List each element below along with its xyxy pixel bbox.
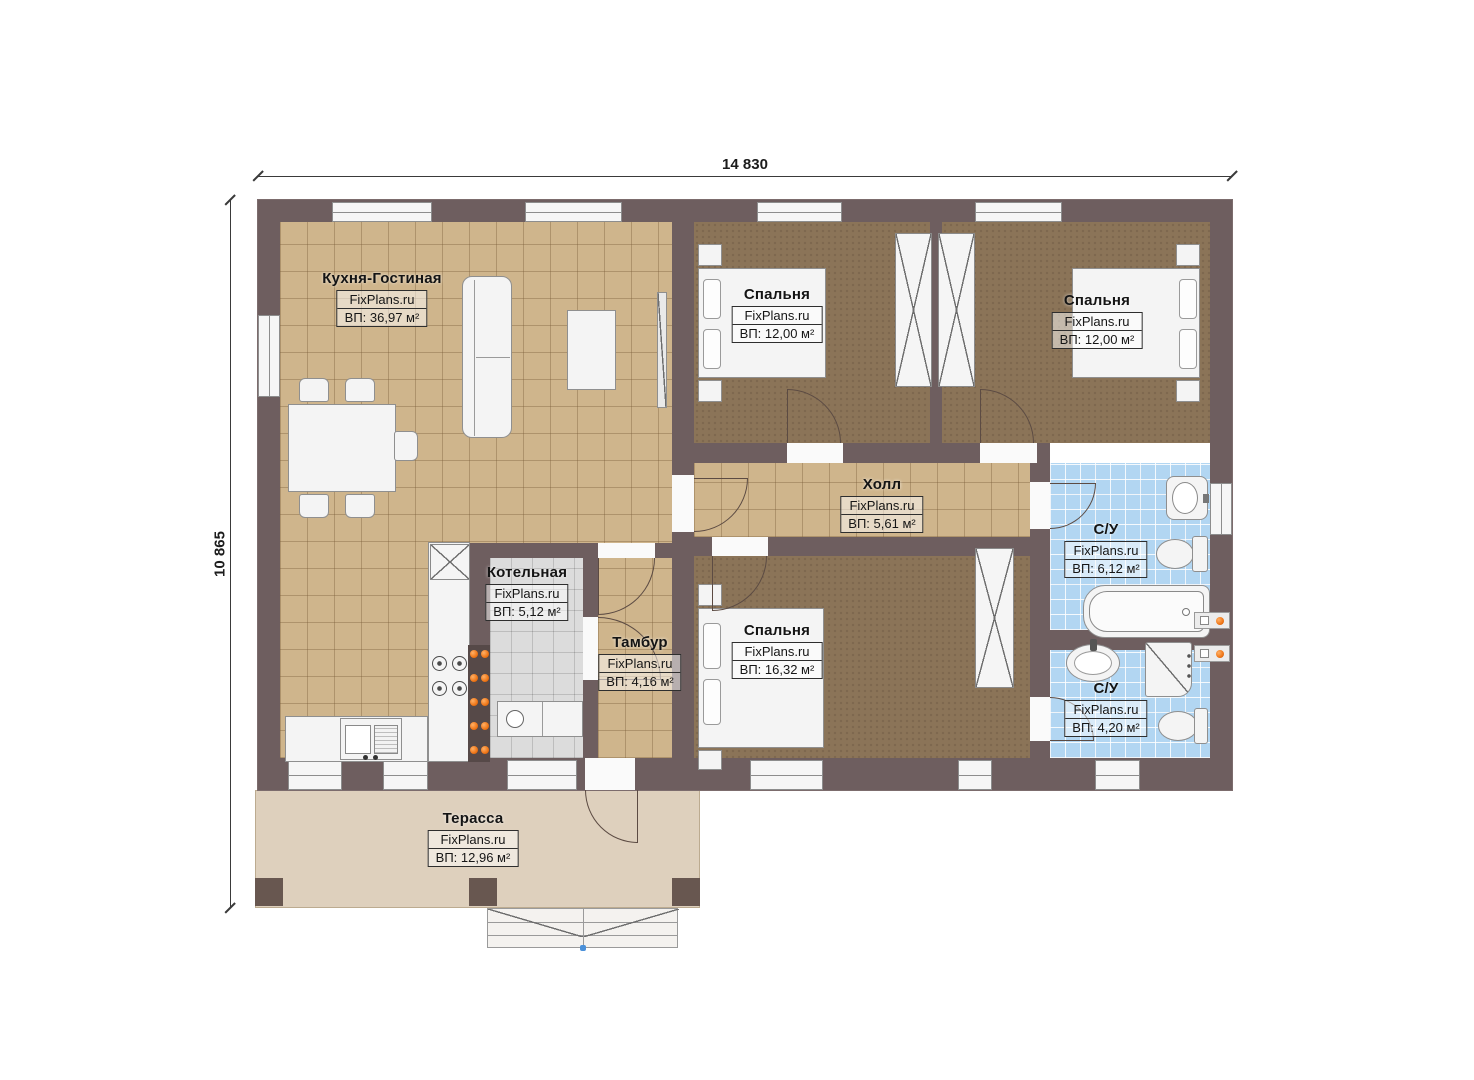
floor-plan-canvas: 14 830 10 865	[0, 0, 1474, 1080]
room-info-box: FixPlans.ru ВП: 5,61 м²	[840, 496, 923, 533]
radiator-icon	[1194, 645, 1230, 662]
bathtub-drain	[1182, 608, 1190, 616]
room-area: ВП: 16,32 м²	[733, 661, 822, 678]
room-label-hall: Холл FixPlans.ru ВП: 5,61 м²	[840, 476, 923, 533]
window-kitchen-bottom-1	[288, 760, 342, 790]
boiler-dial	[506, 710, 524, 728]
window-bathroom1-right	[1210, 483, 1232, 535]
bathroom-sink	[1066, 644, 1120, 682]
shower-cabin	[1145, 642, 1192, 697]
stove	[430, 654, 470, 700]
room-brand: FixPlans.ru	[338, 291, 427, 309]
radiator-icon	[470, 674, 489, 682]
door-opening-kitchen-tambur	[598, 543, 655, 558]
sink-tap	[1090, 639, 1097, 651]
stove-burner	[452, 681, 467, 696]
door-opening-bedroom2	[980, 443, 1037, 463]
room-label-tambur: Тамбур FixPlans.ru ВП: 4,16 м²	[598, 634, 681, 691]
pillow	[703, 679, 721, 725]
radiator-icon	[470, 722, 489, 730]
entrance-steps	[487, 908, 678, 948]
dining-chair	[345, 494, 375, 518]
nightstand	[1176, 244, 1200, 266]
window-kitchen-top-2	[525, 202, 622, 222]
stove-burner	[452, 656, 467, 671]
room-name: С/У	[1064, 680, 1147, 697]
window-kitchen-top-1	[332, 202, 432, 222]
room-area: ВП: 6,12 м²	[1065, 560, 1146, 577]
door-opening-kitchen-hall	[672, 475, 694, 532]
pillow	[703, 623, 721, 669]
wall-exterior-left	[258, 200, 280, 790]
room-info-box: FixPlans.ru ВП: 12,00 м²	[732, 306, 823, 343]
room-name: Терасса	[428, 810, 519, 827]
nightstand	[698, 750, 722, 770]
fridge	[430, 544, 470, 580]
dining-chair	[345, 378, 375, 402]
dimension-line-left	[230, 200, 231, 908]
step-marker-dot	[580, 945, 586, 951]
pillow	[703, 279, 721, 319]
sink-tap	[373, 755, 378, 760]
step-direction-line	[488, 909, 583, 937]
tv-unit	[657, 292, 667, 408]
room-name: Спальня	[1052, 292, 1143, 309]
nightstand	[698, 380, 722, 402]
room-brand: FixPlans.ru	[1053, 313, 1142, 331]
terrace-column	[469, 878, 497, 906]
boiler-unit	[497, 701, 583, 737]
pillow	[1179, 329, 1197, 369]
dining-chair	[299, 494, 329, 518]
shower-head-dots	[1186, 651, 1192, 683]
room-area: ВП: 4,20 м²	[1065, 719, 1146, 736]
toilet-tank	[1192, 536, 1208, 572]
window-bedroom2-top	[975, 202, 1062, 222]
sofa-backrest-line	[463, 280, 475, 436]
room-label-bedroom1: Спальня FixPlans.ru ВП: 12,00 м²	[732, 286, 823, 343]
room-brand: FixPlans.ru	[1065, 542, 1146, 560]
room-label-bathroom1: С/У FixPlans.ru ВП: 6,12 м²	[1064, 521, 1147, 578]
wardrobe	[975, 548, 1014, 688]
window-kitchen-left	[258, 315, 280, 397]
door-opening-entrance	[585, 758, 635, 790]
room-label-bathroom2: С/У FixPlans.ru ВП: 4,20 м²	[1064, 680, 1147, 737]
sink-drainer	[374, 725, 398, 754]
room-brand: FixPlans.ru	[486, 585, 567, 603]
room-label-boiler: Котельная FixPlans.ru ВП: 5,12 м²	[485, 564, 568, 621]
room-area: ВП: 5,12 м²	[486, 603, 567, 620]
door-opening-bathroom1	[1030, 482, 1050, 529]
kitchen-sink	[340, 718, 402, 760]
room-area: ВП: 4,16 м²	[599, 673, 680, 690]
sink-basin	[1172, 482, 1198, 514]
room-name: Кухня-Гостиная	[322, 270, 441, 287]
sink-basin	[1074, 651, 1112, 675]
room-brand: FixPlans.ru	[733, 643, 822, 661]
room-area: ВП: 12,00 м²	[1053, 331, 1142, 348]
nightstand	[698, 244, 722, 266]
door-opening-bedroom1	[787, 443, 843, 463]
room-info-box: FixPlans.ru ВП: 12,00 м²	[1052, 312, 1143, 349]
radiator-icon	[470, 650, 489, 658]
room-label-bedroom2: Спальня FixPlans.ru ВП: 12,00 м²	[1052, 292, 1143, 349]
dining-chair	[394, 431, 418, 461]
room-brand: FixPlans.ru	[429, 831, 518, 849]
wardrobe	[895, 233, 932, 387]
room-area: ВП: 12,00 м²	[733, 325, 822, 342]
radiator-icon	[470, 698, 489, 706]
room-area: ВП: 5,61 м²	[841, 515, 922, 532]
window-boiler-bottom	[507, 760, 577, 790]
room-name: Холл	[840, 476, 923, 493]
room-info-box: FixPlans.ru ВП: 5,12 м²	[485, 584, 568, 621]
room-label-terrace: Терасса FixPlans.ru ВП: 12,96 м²	[428, 810, 519, 867]
room-name: Тамбур	[598, 634, 681, 651]
room-info-box: FixPlans.ru ВП: 16,32 м²	[732, 642, 823, 679]
room-name: Спальня	[732, 622, 823, 639]
room-brand: FixPlans.ru	[733, 307, 822, 325]
stove-burner	[432, 681, 447, 696]
room-name: Котельная	[485, 564, 568, 581]
toilet	[1158, 711, 1198, 741]
room-brand: FixPlans.ru	[1065, 701, 1146, 719]
bathroom-sink	[1166, 476, 1208, 520]
pillow	[1179, 279, 1197, 319]
window-bedroom3-bottom-small	[958, 760, 992, 790]
toilet	[1156, 539, 1194, 569]
radiator-icon	[1194, 612, 1230, 629]
room-info-box: FixPlans.ru ВП: 12,96 м²	[428, 830, 519, 867]
step-direction-line	[583, 909, 679, 937]
room-brand: FixPlans.ru	[599, 655, 680, 673]
room-info-box: FixPlans.ru ВП: 36,97 м²	[337, 290, 428, 327]
room-name: Спальня	[732, 286, 823, 303]
sink-tap	[363, 755, 368, 760]
room-info-box: FixPlans.ru ВП: 6,12 м²	[1064, 541, 1147, 578]
window-bathroom2-bottom	[1095, 760, 1140, 790]
wardrobe	[938, 233, 975, 387]
stove-burner	[432, 656, 447, 671]
room-info-box: FixPlans.ru ВП: 4,20 м²	[1064, 700, 1147, 737]
room-label-kitchen: Кухня-Гостиная FixPlans.ru ВП: 36,97 м²	[322, 270, 441, 327]
bathtub	[1083, 585, 1210, 638]
door-opening-bedroom3	[712, 537, 768, 556]
sink-bowl	[345, 725, 371, 754]
window-bedroom3-bottom	[750, 760, 823, 790]
room-info-box: FixPlans.ru ВП: 4,16 м²	[598, 654, 681, 691]
sofa-cushion-divider	[476, 357, 510, 358]
dimension-height-label: 10 865	[212, 531, 229, 577]
room-area: ВП: 36,97 м²	[338, 309, 427, 326]
dining-chair	[299, 378, 329, 402]
toilet-tank	[1194, 708, 1208, 744]
door-opening-boiler-tambur	[583, 617, 598, 680]
boiler-divider	[542, 702, 543, 736]
dimension-width-label: 14 830	[722, 156, 768, 173]
terrace-column	[672, 878, 700, 906]
window-bedroom1-top	[757, 202, 842, 222]
window-kitchen-bottom-2	[383, 760, 428, 790]
room-name: С/У	[1064, 521, 1147, 538]
terrace-column	[255, 878, 283, 906]
sink-tap	[1203, 494, 1209, 503]
room-area: ВП: 12,96 м²	[429, 849, 518, 866]
sofa	[462, 276, 512, 438]
step-center-line	[583, 909, 584, 949]
door-opening-bathroom2	[1030, 697, 1050, 741]
room-brand: FixPlans.ru	[841, 497, 922, 515]
dimension-line-top	[258, 176, 1232, 177]
radiator-icon	[470, 746, 489, 754]
coffee-table	[567, 310, 616, 390]
room-label-bedroom3: Спальня FixPlans.ru ВП: 16,32 м²	[732, 622, 823, 679]
dining-table	[288, 404, 396, 492]
pillow	[703, 329, 721, 369]
nightstand	[1176, 380, 1200, 402]
